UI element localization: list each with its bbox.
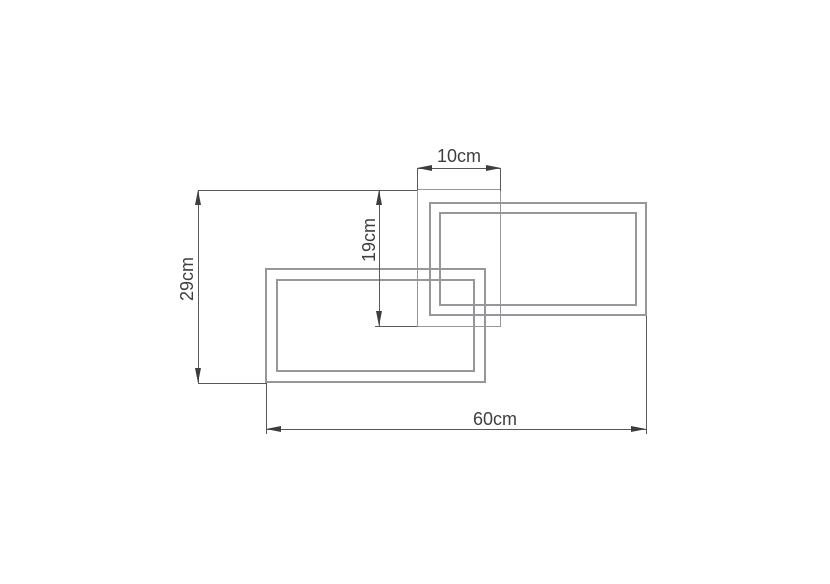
- dim-10-ext-right: [500, 168, 501, 191]
- dim-label-overall-height: 29cm: [178, 257, 196, 301]
- dim-19-arrow-bottom: [376, 311, 382, 326]
- dim-label-canopy-width: 10cm: [417, 147, 501, 165]
- dim-29-ext-top: [198, 190, 417, 191]
- dim-29-arrow-bottom: [195, 368, 201, 383]
- dim-19-line: [379, 190, 380, 326]
- dim-60-ext-right: [646, 316, 647, 434]
- dim-60-line: [266, 429, 646, 430]
- dim-19-ext-bottom: [375, 326, 417, 327]
- dim-29-arrow-top: [195, 190, 201, 205]
- dimension-drawing: 10cm 29cm 19cm 60cm: [0, 0, 830, 584]
- dim-10-arrow-left: [417, 165, 432, 171]
- dim-label-inner-drop: 19cm: [360, 218, 378, 262]
- dim-29-line: [198, 190, 199, 383]
- dim-label-overall-width: 60cm: [473, 410, 517, 428]
- dim-19-arrow-top: [376, 190, 382, 205]
- dim-10-arrow-right: [486, 165, 501, 171]
- dim-10-ext-left: [417, 168, 418, 190]
- dim-60-arrow-right: [631, 426, 646, 432]
- dim-29-ext-bottom: [198, 383, 266, 384]
- dim-60-arrow-left: [266, 426, 281, 432]
